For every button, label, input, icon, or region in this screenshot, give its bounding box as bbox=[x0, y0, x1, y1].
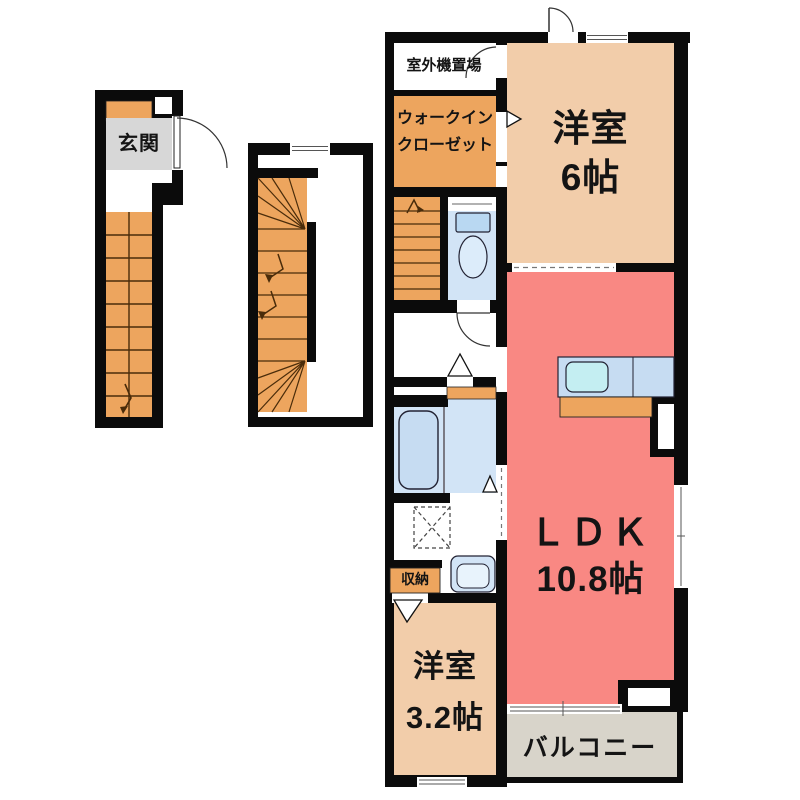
room-6 bbox=[507, 43, 674, 263]
outdoor-unit-label: 室外機置場 bbox=[390, 58, 498, 75]
door-arc-icon bbox=[549, 8, 573, 32]
ldk-name-label: ＬＤＫ bbox=[507, 512, 674, 553]
window-icon bbox=[586, 32, 628, 43]
stairs-left bbox=[106, 212, 152, 417]
door-arc-icon bbox=[177, 118, 227, 168]
pipe-space bbox=[658, 404, 674, 449]
stairs-center bbox=[258, 178, 307, 412]
window-icon bbox=[674, 485, 688, 588]
washbasin-icon bbox=[451, 556, 495, 592]
room32-size-label: 3.2帖 bbox=[394, 701, 496, 736]
window-icon bbox=[290, 143, 330, 155]
window-icon bbox=[417, 777, 467, 787]
ldk-size-label: 10.8帖 bbox=[507, 560, 674, 599]
floorplan-canvas: 玄関 室外機置場 ウォークイン クローゼット 洋室 6帖 ＬＤＫ 10.8帖 収… bbox=[0, 0, 800, 800]
storage-label: 収納 bbox=[390, 572, 440, 588]
bathtub-icon bbox=[399, 411, 438, 489]
wall-inset bbox=[628, 688, 670, 706]
wic-label-line1: ウォークイン bbox=[394, 110, 496, 128]
wall-notch bbox=[155, 97, 172, 114]
kitchen-sink-icon bbox=[566, 362, 608, 392]
room32-name-label: 洋室 bbox=[394, 650, 496, 685]
balcony-label: バルコニー bbox=[503, 734, 677, 762]
stairs-upper bbox=[394, 197, 440, 300]
room6-name-label: 洋室 bbox=[507, 108, 674, 149]
door-leaf-icon bbox=[174, 116, 180, 168]
stairwell-unit bbox=[248, 143, 373, 427]
sliding-door-room6-ldk bbox=[512, 263, 616, 272]
room6-size-label: 6帖 bbox=[507, 157, 674, 198]
room-32 bbox=[394, 603, 496, 775]
sliding-door-laundry bbox=[496, 465, 507, 540]
genkan-label: 玄関 bbox=[106, 133, 172, 155]
wic-label-line2: クローゼット bbox=[394, 137, 496, 155]
room-ldk bbox=[507, 272, 674, 708]
washroom-counter bbox=[447, 387, 496, 399]
